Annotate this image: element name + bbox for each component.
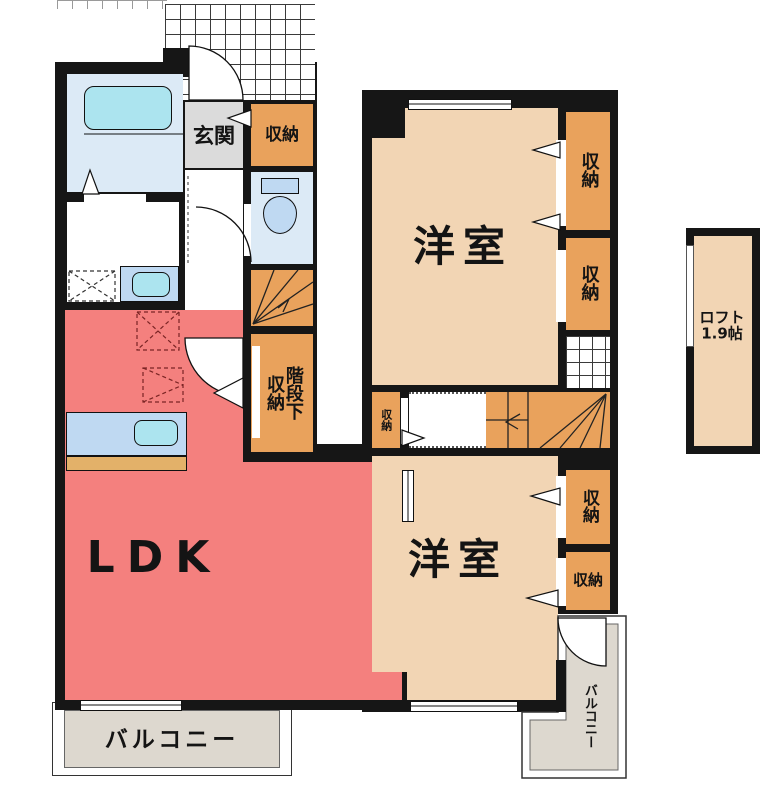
- label-under-stair-storage: 階段下 収納: [264, 366, 302, 420]
- stairs-2f-treads: [486, 392, 606, 448]
- label-storage-2f-hall: 収納: [380, 409, 392, 431]
- door-triangle-storage-2f-5: [527, 590, 558, 607]
- label-balcony-1f: バルコニー: [105, 728, 240, 752]
- floor-plan: LDK 玄関 収納 階段下 収納 バルコニー 洋室 洋室 収納 収納 収納 収納…: [0, 0, 782, 800]
- label-storage-2f-4: 収納: [579, 489, 597, 523]
- ldk-dashed-box-1: [137, 312, 179, 350]
- ldk-dashed-box-2: [143, 368, 183, 402]
- plan-lineart: [0, 0, 782, 800]
- label-under-stair-storage-line1: 階段下: [283, 366, 302, 420]
- label-storage-2f-5: 収納: [573, 573, 603, 589]
- label-entrance: 玄関: [193, 125, 235, 147]
- label-storage-2f-1: 収納: [579, 152, 598, 188]
- door-triangle-storage-2f-4: [531, 488, 560, 505]
- label-bedroom-bottom: 洋室: [408, 538, 508, 582]
- door-arc-entrance: [189, 46, 243, 100]
- label-loft: ロフト 1.9帖: [699, 310, 744, 342]
- label-balcony-2f: バルコニー: [582, 684, 596, 749]
- door-triangle-storage-2f-1: [533, 142, 560, 158]
- label-loft-line2: 1.9帖: [699, 326, 744, 342]
- wall-balcony-2f-stub: [556, 660, 566, 712]
- washer-space-box: [69, 271, 115, 301]
- label-bedroom-top: 洋室: [413, 225, 513, 269]
- label-storage-2f-2: 収納: [579, 265, 598, 301]
- door-triangle-bathroom: [82, 170, 99, 194]
- label-ldk: LDK: [87, 535, 222, 581]
- door-triangle-storage-2f-hall: [402, 430, 424, 446]
- label-under-stair-storage-line2: 収納: [264, 366, 283, 420]
- door-arc-hall-washroom: [196, 207, 251, 262]
- door-triangle-storage-2f-2: [533, 214, 560, 230]
- label-entrance-storage: 収納: [265, 127, 299, 145]
- stairs-1f-treads: [253, 270, 313, 324]
